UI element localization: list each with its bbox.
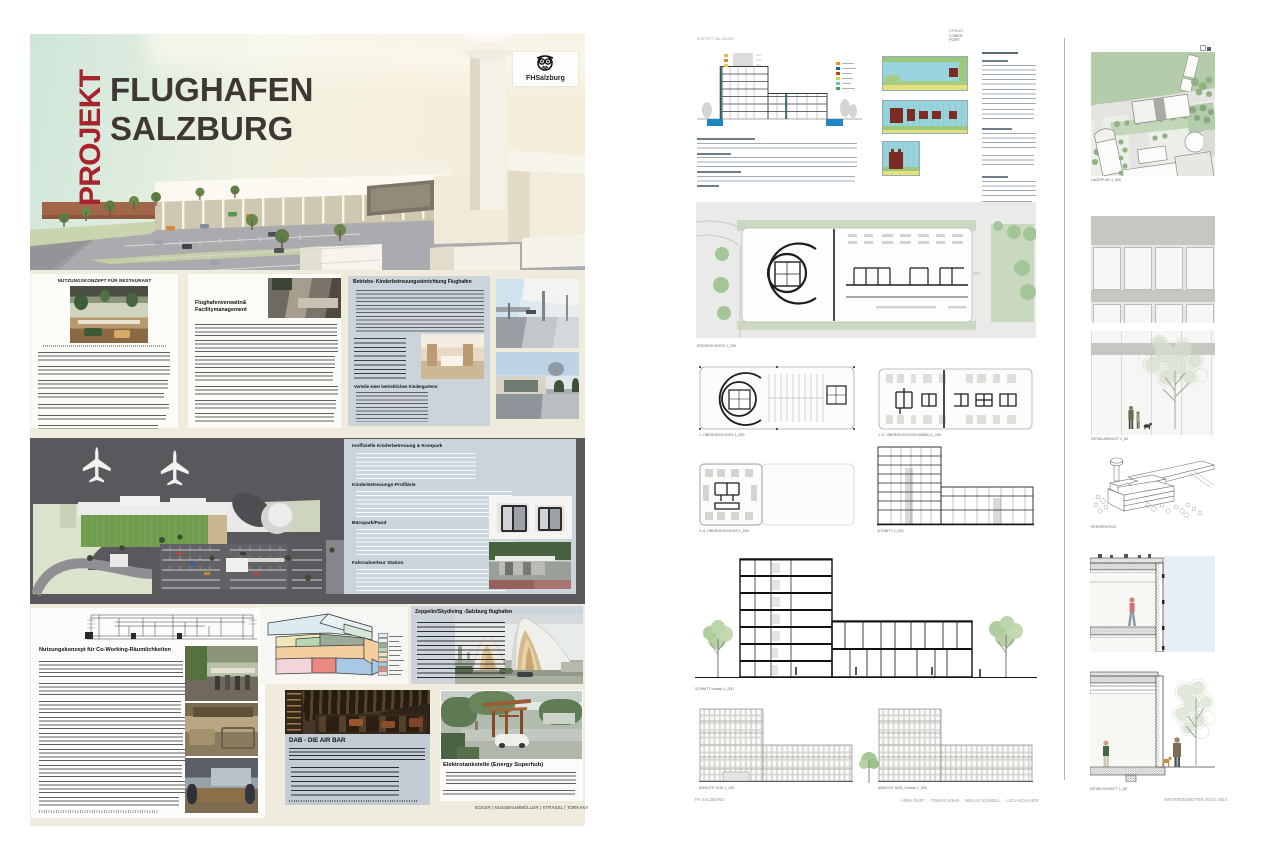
svg-text:xxxx: xxxx — [756, 64, 762, 67]
svg-text:xxxx: xxxx — [756, 54, 762, 57]
svg-text:xxxx: xxxx — [756, 59, 762, 62]
